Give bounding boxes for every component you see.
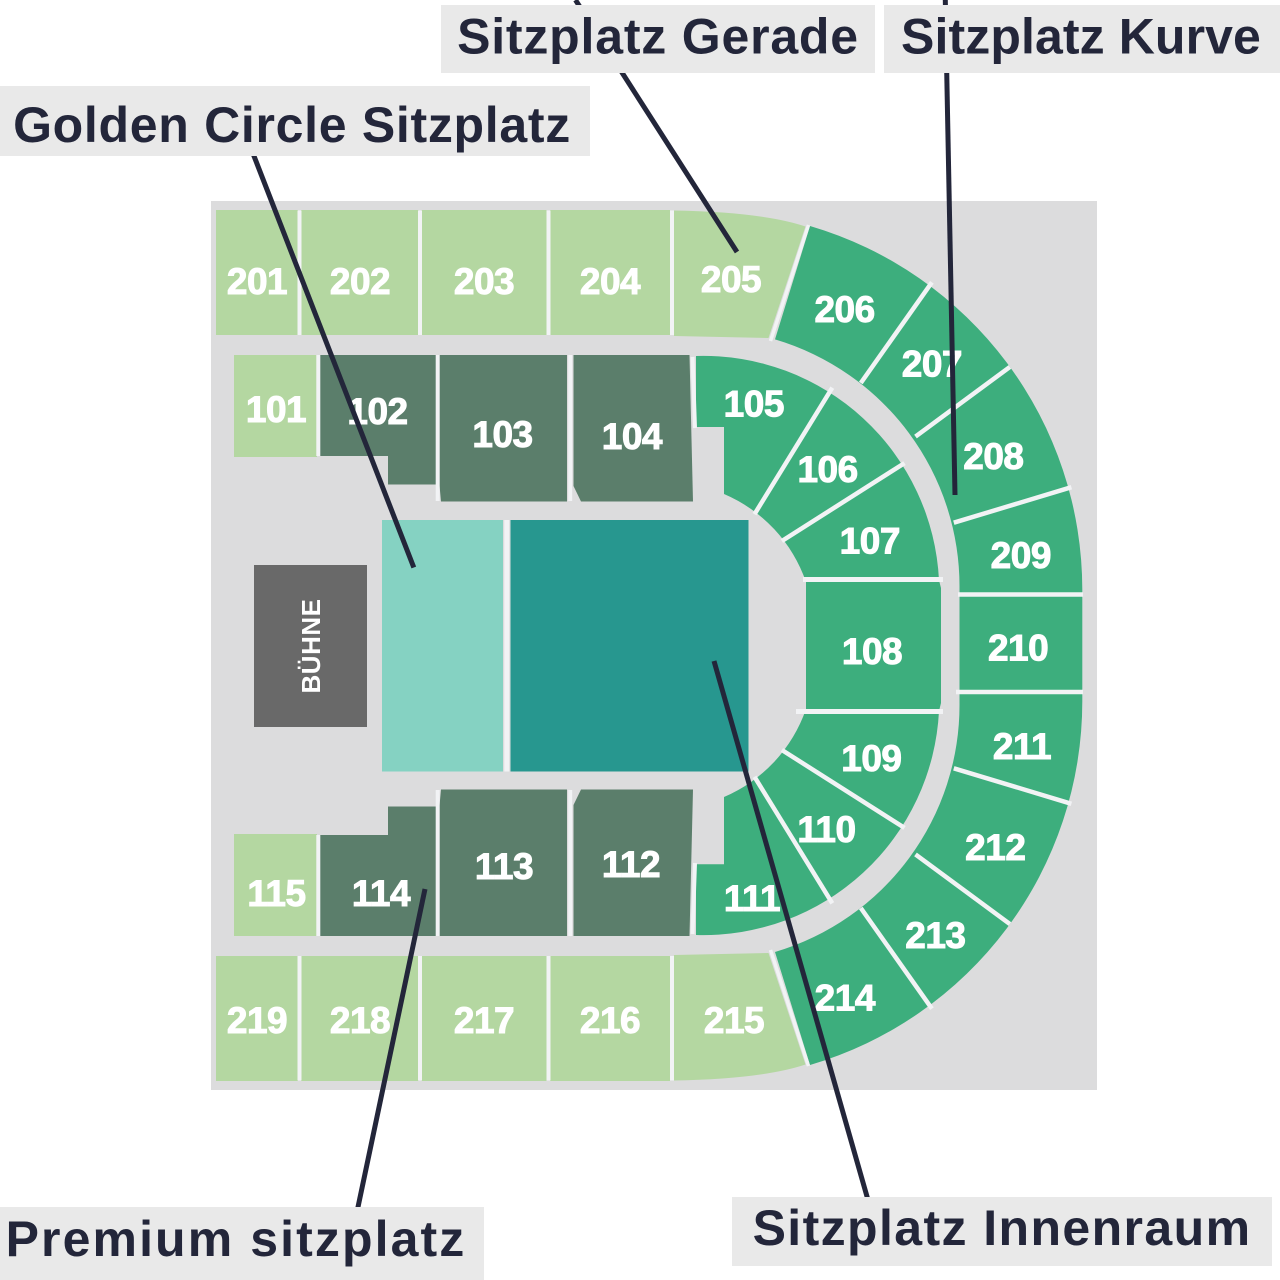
svg-text:115: 115	[247, 873, 305, 914]
svg-text:111: 111	[724, 878, 780, 919]
svg-text:Sitzplatz Gerade: Sitzplatz Gerade	[457, 9, 859, 65]
svg-text:215: 215	[704, 1000, 764, 1041]
svg-text:106: 106	[797, 449, 857, 490]
svg-text:110: 110	[797, 809, 855, 850]
svg-text:206: 206	[814, 289, 874, 330]
svg-text:217: 217	[454, 1000, 514, 1041]
svg-text:112: 112	[602, 844, 660, 885]
svg-text:105: 105	[724, 384, 784, 425]
svg-text:211: 211	[993, 726, 1051, 767]
svg-text:218: 218	[330, 1000, 390, 1041]
svg-text:109: 109	[841, 738, 901, 779]
svg-text:Golden Circle Sitzplatz: Golden Circle Sitzplatz	[13, 97, 571, 153]
svg-text:107: 107	[840, 521, 900, 562]
svg-text:209: 209	[991, 535, 1051, 576]
svg-text:101: 101	[246, 389, 306, 430]
svg-text:203: 203	[454, 261, 514, 302]
svg-text:BÜHNE: BÜHNE	[296, 599, 326, 694]
svg-text:205: 205	[701, 259, 761, 300]
svg-text:219: 219	[227, 1000, 287, 1041]
svg-text:113: 113	[475, 846, 533, 887]
svg-text:216: 216	[580, 1000, 640, 1041]
svg-text:213: 213	[905, 915, 965, 956]
svg-text:114: 114	[352, 873, 411, 914]
svg-text:204: 204	[580, 261, 641, 302]
svg-text:210: 210	[988, 627, 1048, 668]
svg-text:108: 108	[842, 631, 902, 672]
svg-text:103: 103	[472, 414, 532, 455]
svg-text:Sitzplatz Innenraum: Sitzplatz Innenraum	[753, 1200, 1252, 1256]
svg-text:202: 202	[330, 261, 390, 302]
svg-text:104: 104	[602, 416, 663, 457]
svg-text:201: 201	[227, 261, 287, 302]
svg-text:214: 214	[815, 977, 876, 1018]
svg-text:212: 212	[965, 827, 1025, 868]
svg-text:Premium sitzplatz: Premium sitzplatz	[6, 1211, 467, 1267]
svg-text:208: 208	[963, 436, 1023, 477]
svg-text:Sitzplatz Kurve: Sitzplatz Kurve	[901, 9, 1261, 65]
